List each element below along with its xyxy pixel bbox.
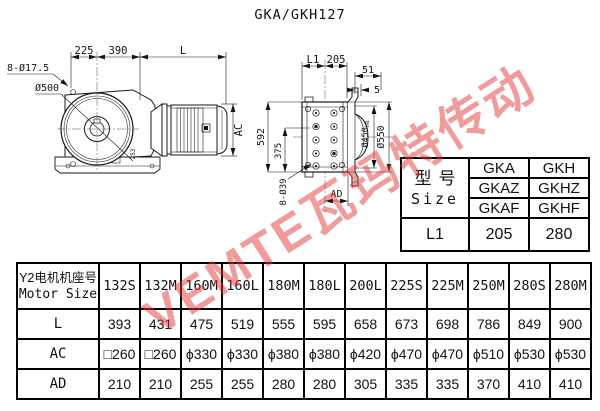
value-cell: □260	[99, 339, 140, 369]
row-label-L: L	[17, 309, 99, 339]
dim-AD-label: AD	[330, 189, 342, 200]
l1-value-cell: 280	[529, 218, 589, 251]
value-cell: ϕ330	[222, 339, 263, 369]
value-cell: 595	[304, 309, 345, 339]
dia-550-label: Ø550	[376, 125, 387, 148]
value-cell: 255	[181, 369, 222, 399]
value-cell: ϕ420	[345, 339, 386, 369]
dim-L-label: L	[180, 45, 186, 57]
datasheet-page: GKA/GKH127	[0, 0, 600, 411]
dim-253-label: 253	[130, 148, 137, 159]
value-cell: 698	[427, 309, 468, 339]
motor-col-header: 250M	[468, 263, 509, 309]
value-cell: 849	[509, 309, 550, 339]
model-size-table: 型号 Size GKA GKH GKAZ GKHZ GKAF GKHF L1 2…	[400, 157, 590, 252]
motor-col-header: 280M	[550, 263, 591, 309]
motor-col-header: 160M	[181, 263, 222, 309]
motor-header-en: Motor Size	[18, 287, 98, 303]
value-cell: 370	[468, 369, 509, 399]
dim-AC-label: AC	[233, 124, 245, 137]
l1-value-cell: 205	[469, 218, 529, 251]
motor-col-header: 180M	[263, 263, 304, 309]
model-cell: GKA	[469, 158, 529, 178]
value-cell: 305	[345, 369, 386, 399]
size-table-row: 型号 Size GKA GKH	[401, 158, 589, 178]
value-cell: ϕ530	[550, 339, 591, 369]
motor-col-header: 132S	[99, 263, 140, 309]
value-cell: 673	[386, 309, 427, 339]
value-cell: 280	[263, 369, 304, 399]
model-cell: GKHZ	[529, 178, 589, 198]
size-header-en: Size	[402, 190, 468, 208]
dia-500-label: Ø500	[35, 82, 59, 94]
value-cell: ϕ510	[468, 339, 509, 369]
motor-table-header-row: Y2电机机座号 Motor Size 132S 132M 160M 160L 1…	[17, 263, 591, 309]
motor-size-table: Y2电机机座号 Motor Size 132S 132M 160M 160L 1…	[16, 262, 592, 400]
motor-col-header: 180L	[304, 263, 345, 309]
value-cell: ϕ470	[386, 339, 427, 369]
row-label-AC: AC	[17, 339, 99, 369]
motor-header-cn: Y2电机机座号	[18, 269, 98, 287]
model-cell: GKAZ	[469, 178, 529, 198]
value-cell: 210	[99, 369, 140, 399]
motor-col-header: 225S	[386, 263, 427, 309]
value-cell: 900	[550, 309, 591, 339]
value-cell: 658	[345, 309, 386, 339]
model-cell: GKH	[529, 158, 589, 178]
value-cell: ϕ530	[509, 339, 550, 369]
motor-col-header: 225M	[427, 263, 468, 309]
motor-table-corner: Y2电机机座号 Motor Size	[17, 263, 99, 309]
value-cell: 255	[222, 369, 263, 399]
motor-row-L: L 393 431 475 519 555 595 658 673 698 78…	[17, 309, 591, 339]
value-cell: 786	[468, 309, 509, 339]
value-cell: □260	[140, 339, 181, 369]
value-cell: ϕ380	[263, 339, 304, 369]
size-header-cn: 型号	[402, 168, 468, 189]
value-cell: 210	[140, 369, 181, 399]
value-cell: 393	[99, 309, 140, 339]
motor-col-header: 132M	[140, 263, 181, 309]
motor-col-header: 200L	[345, 263, 386, 309]
dim-5-label: 5	[374, 85, 380, 96]
left-view-drawing: 225 390 L 8-Ø17.5 Ø500 AC 253	[5, 40, 255, 210]
flange-body	[302, 97, 348, 177]
model-cell: GKAF	[469, 198, 529, 218]
value-cell: 555	[263, 309, 304, 339]
value-cell: 280	[304, 369, 345, 399]
page-title: GKA/GKH127	[0, 7, 600, 23]
size-table-l1-row: L1 205 280	[401, 218, 589, 251]
value-cell: 475	[181, 309, 222, 339]
bolt-callout-label: 8-Ø39	[278, 178, 289, 205]
motor-col-header: 160L	[222, 263, 263, 309]
l1-label-cell: L1	[401, 218, 469, 251]
motor-col-header: 280S	[509, 263, 550, 309]
dim-205-label: 205	[327, 54, 346, 66]
motor-row-AD: AD 210 210 255 255 280 280 305 335 335 3…	[17, 369, 591, 399]
dim-L1-label: L1	[307, 54, 320, 66]
value-cell: 335	[386, 369, 427, 399]
value-cell: ϕ380	[304, 339, 345, 369]
bolt-callout-label: 8-Ø17.5	[7, 62, 49, 74]
row-label-AD: AD	[17, 369, 99, 399]
value-cell: 335	[427, 369, 468, 399]
dim-592-label: 592	[256, 128, 267, 146]
dim-225-label: 225	[75, 45, 94, 57]
dim-51-label: 51	[362, 65, 374, 76]
value-cell: 410	[509, 369, 550, 399]
value-cell: 431	[140, 309, 181, 339]
size-table-header: 型号 Size	[401, 158, 469, 218]
value-cell: ϕ330	[181, 339, 222, 369]
motor-body	[151, 104, 227, 156]
dim-390-label: 390	[109, 45, 128, 57]
dim-375-label: 375	[274, 143, 284, 159]
right-view-drawing: L1 205 51 5 592 375 8-Ø39 Ø450h6 Ø550 AD	[255, 40, 405, 255]
value-cell: 410	[550, 369, 591, 399]
value-cell: 519	[222, 309, 263, 339]
motor-row-AC: AC □260 □260 ϕ330 ϕ330 ϕ380 ϕ380 ϕ420 ϕ4…	[17, 339, 591, 369]
value-cell: ϕ470	[427, 339, 468, 369]
model-cell: GKHF	[529, 198, 589, 218]
